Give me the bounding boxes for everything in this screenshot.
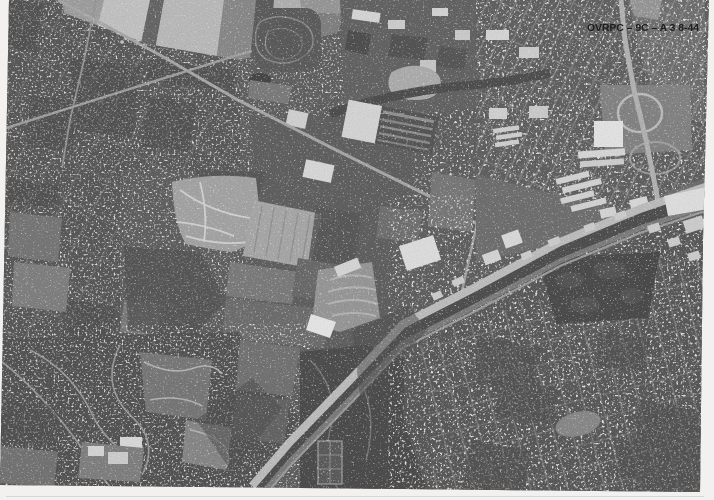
svg-text:OVRPC – 9C – A 3 8-44: OVRPC – 9C – A 3 8-44: [587, 22, 699, 34]
